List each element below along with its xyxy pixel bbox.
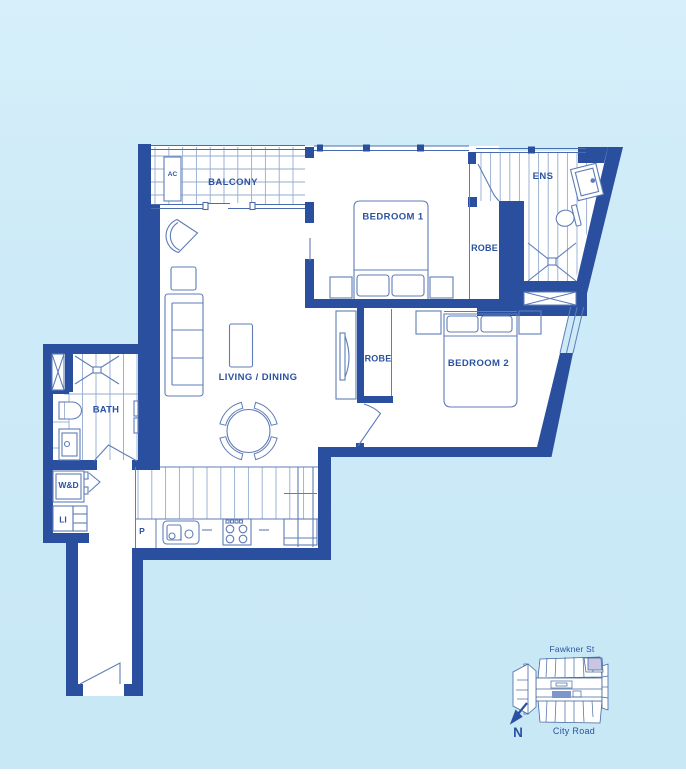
svg-text:BALCONY: BALCONY	[208, 177, 258, 188]
svg-text:Fawkner St: Fawkner St	[550, 644, 595, 654]
svg-text:P: P	[139, 526, 145, 536]
svg-text:W&D: W&D	[58, 480, 78, 490]
svg-text:AC: AC	[168, 171, 178, 178]
svg-text:LI: LI	[59, 515, 67, 525]
svg-text:BEDROOM 2: BEDROOM 2	[448, 358, 509, 369]
svg-text:ENS: ENS	[533, 171, 554, 182]
svg-text:LIVING / DINING: LIVING / DINING	[219, 372, 298, 383]
svg-text:ROBE: ROBE	[365, 354, 392, 364]
svg-text:City Road: City Road	[553, 726, 595, 736]
svg-text:BEDROOM 1: BEDROOM 1	[362, 212, 423, 223]
svg-text:ROBE: ROBE	[471, 243, 498, 253]
svg-text:N: N	[513, 725, 523, 740]
svg-text:BATH: BATH	[93, 405, 119, 416]
